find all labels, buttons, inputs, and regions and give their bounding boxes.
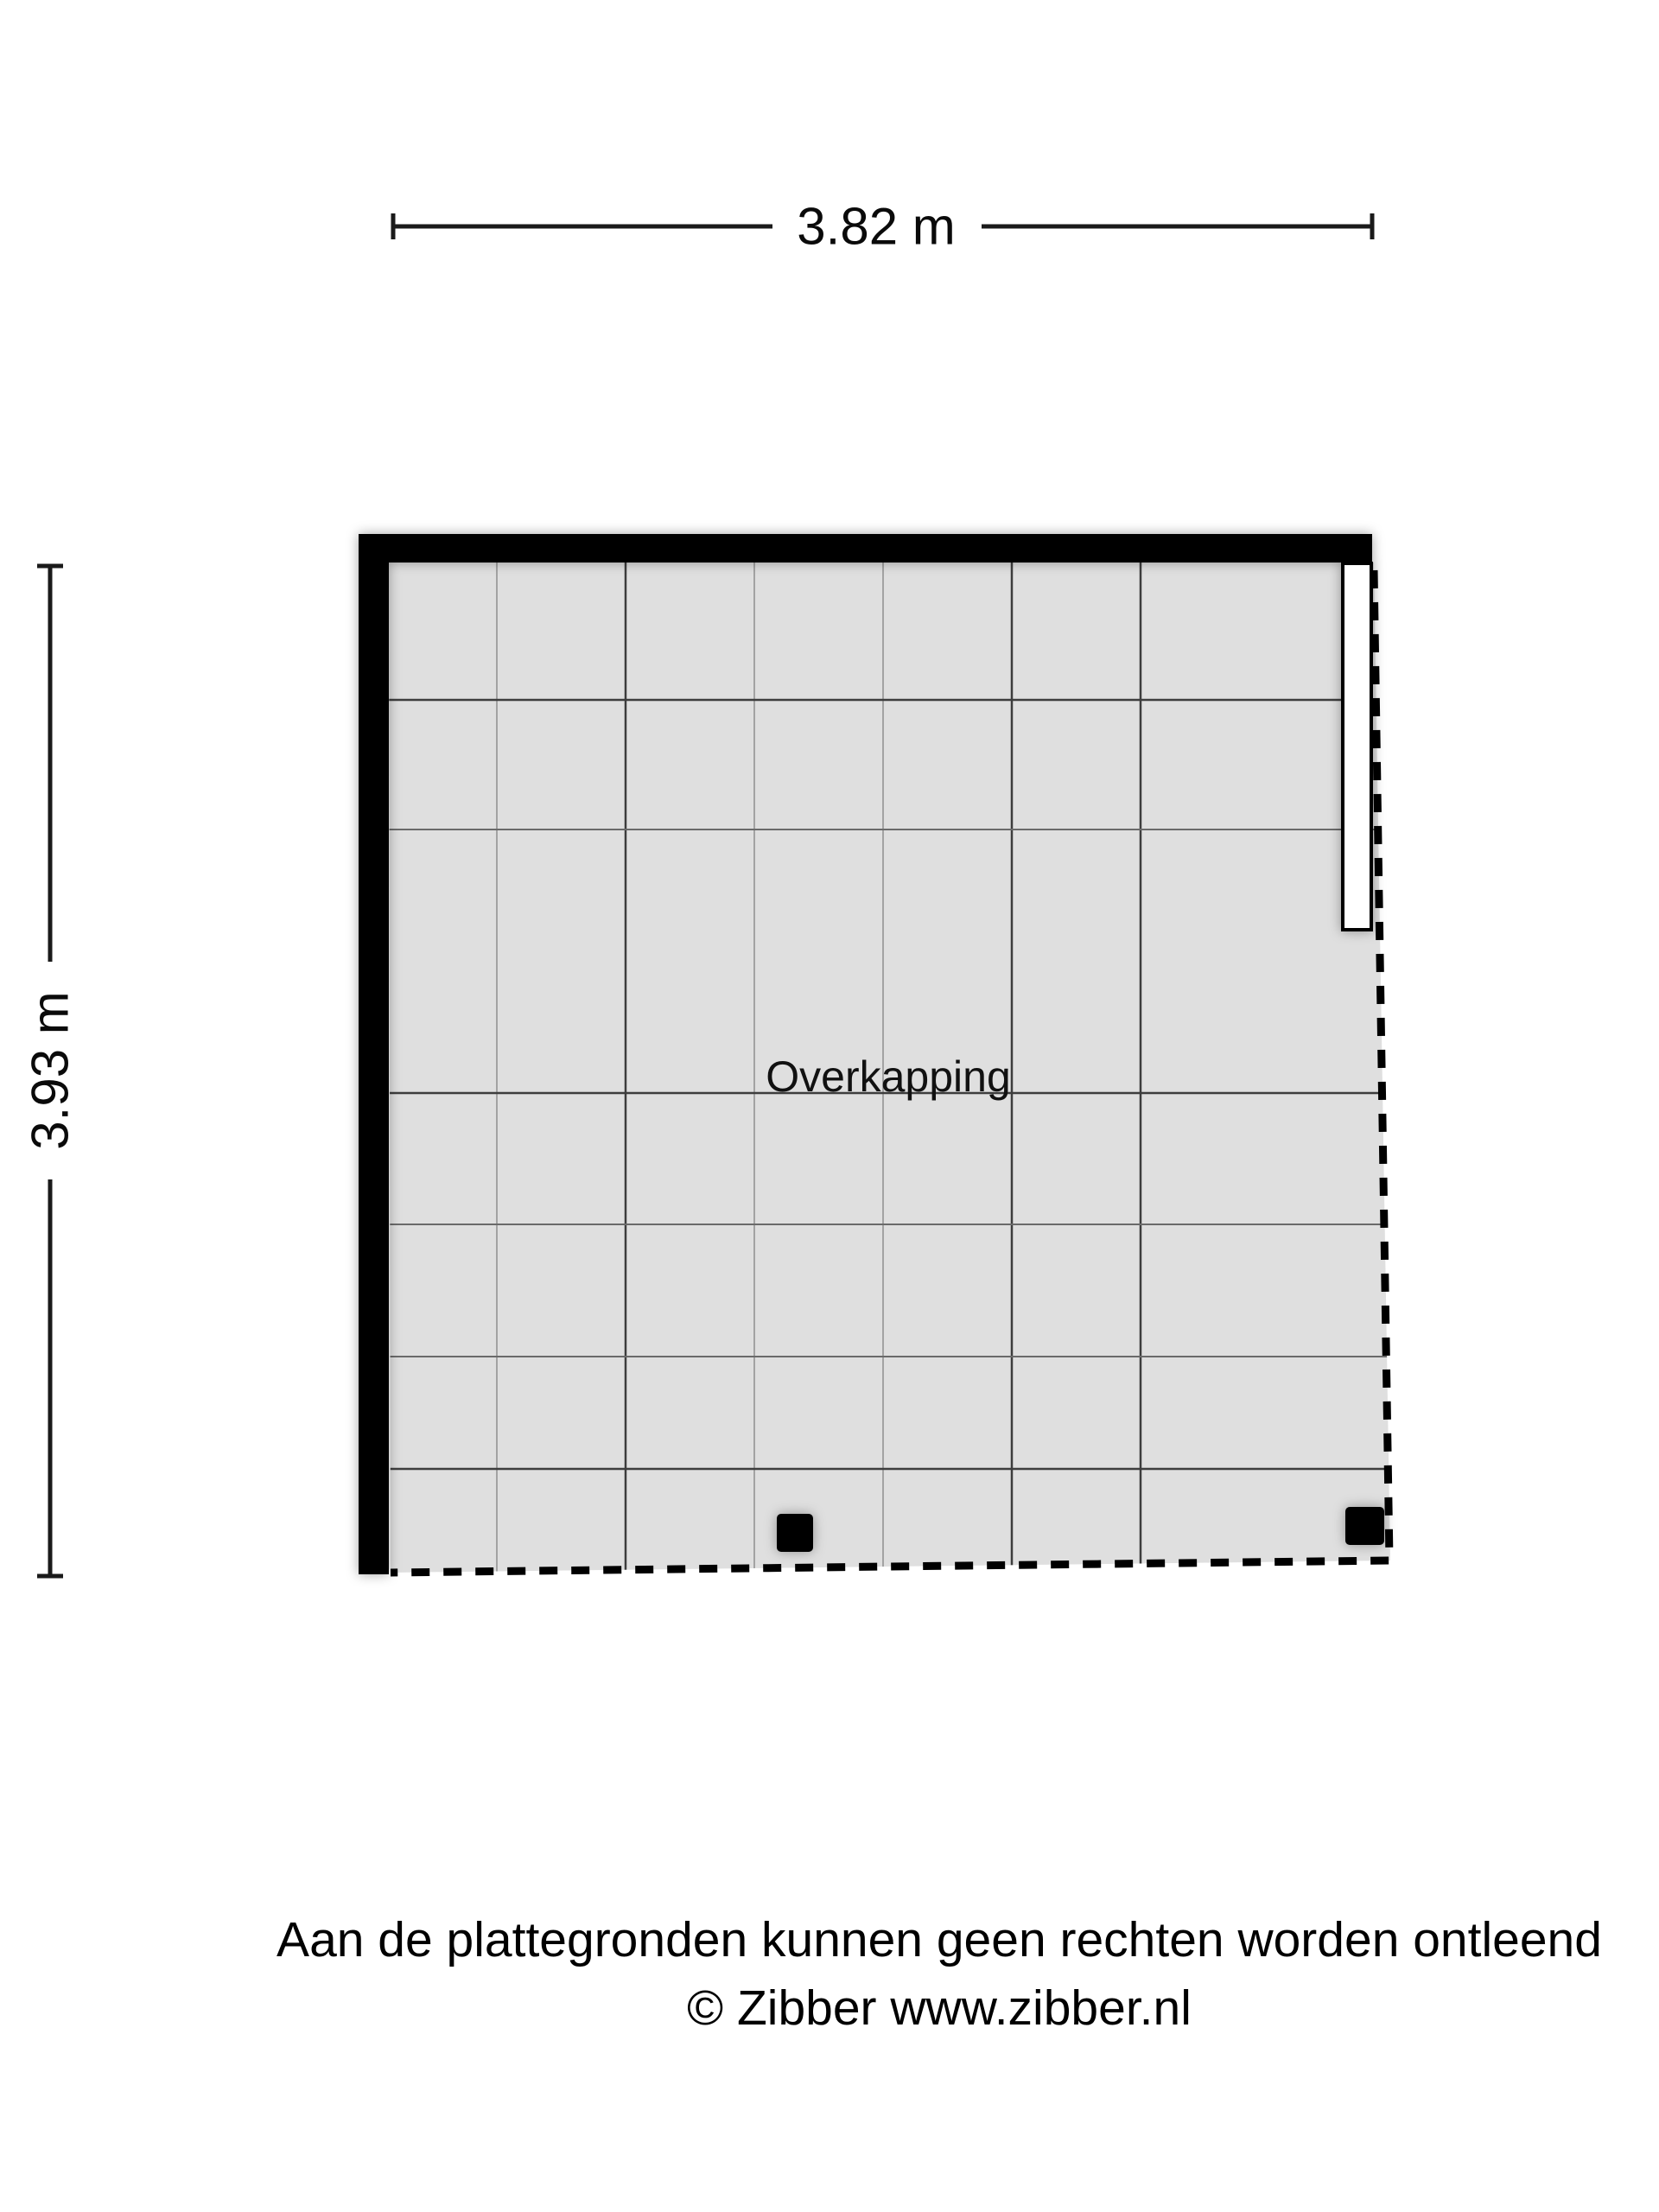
height-dimension-label: 3.93 m — [22, 991, 79, 1149]
footer-copyright: © Zibber www.zibber.nl — [276, 1974, 1602, 2043]
footer-disclaimer: Aan de plattegronden kunnen geen rechten… — [276, 1906, 1602, 1974]
left-wall — [359, 534, 389, 1574]
room-label: Overkapping — [766, 1052, 1011, 1101]
post-bottom-center — [777, 1514, 813, 1552]
beam — [1343, 563, 1371, 930]
width-dimension-label: 3.82 m — [797, 198, 955, 256]
width-dimension: 3.82 m — [393, 198, 1372, 256]
top-wall — [359, 534, 1372, 563]
height-dimension: 3.93 m — [22, 566, 79, 1576]
footer: Aan de plattegronden kunnen geen rechten… — [276, 1906, 1602, 2043]
post-bottom-right — [1345, 1507, 1384, 1545]
floorplan-drawing: 3.82 m 3.93 m — [0, 0, 1659, 2212]
floorplan-page: 3.82 m 3.93 m — [0, 0, 1659, 2212]
